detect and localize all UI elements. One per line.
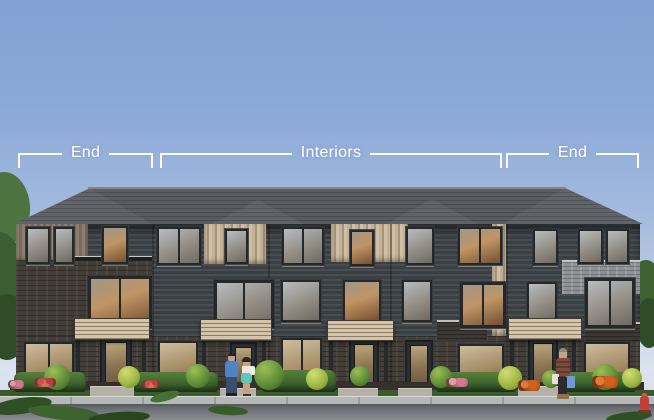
shoulder-bag — [250, 366, 255, 375]
window — [281, 280, 321, 322]
person-feet — [243, 394, 251, 396]
shrub — [118, 366, 140, 388]
window — [54, 227, 74, 264]
bracket-line — [370, 153, 502, 168]
shrub — [622, 368, 642, 388]
person-feet — [226, 393, 237, 396]
person-boots — [557, 394, 569, 399]
window — [406, 227, 434, 265]
window — [527, 282, 557, 322]
bracket-label: End — [71, 144, 100, 168]
bracket-line — [506, 153, 549, 168]
window — [606, 229, 629, 264]
bracket-line — [160, 153, 292, 168]
window — [460, 282, 506, 328]
person-legs — [226, 377, 237, 394]
shrub — [186, 364, 210, 388]
window — [533, 229, 558, 265]
window — [585, 278, 635, 328]
entry-canopy — [74, 318, 150, 340]
bracket-line — [596, 153, 639, 168]
entry-canopy — [327, 320, 394, 341]
window — [343, 280, 381, 322]
shopping-bag — [566, 376, 575, 388]
bracket-end-left: End — [18, 153, 153, 168]
pedestrian-with-bags — [551, 348, 575, 402]
couple-at-entry — [224, 352, 256, 398]
bracket-end-right: End — [506, 153, 639, 168]
person-legs — [558, 377, 567, 394]
flower-cluster — [592, 376, 618, 388]
bracket-label: End — [558, 144, 587, 168]
window — [26, 227, 50, 264]
bracket-line — [18, 153, 62, 168]
window — [282, 227, 324, 265]
bracket-interiors: Interiors — [160, 153, 502, 168]
flower-cluster — [34, 378, 56, 387]
flower-cluster — [8, 380, 24, 389]
roof-ridge — [88, 187, 566, 189]
flower-cluster — [518, 380, 540, 391]
canopy-post — [384, 338, 388, 388]
window — [402, 280, 432, 322]
unit-divider — [152, 224, 154, 390]
window — [102, 226, 128, 264]
window — [157, 227, 201, 265]
entry-canopy — [200, 319, 272, 341]
bracket-line — [109, 153, 153, 168]
unit-divider — [390, 224, 392, 390]
window — [225, 229, 248, 264]
flower-cluster — [446, 378, 468, 387]
flower-cluster — [142, 380, 160, 388]
shrub — [350, 366, 370, 386]
shrub — [254, 360, 284, 390]
shrub — [306, 368, 328, 390]
person-torso — [225, 361, 238, 378]
window — [578, 229, 603, 264]
window — [350, 230, 374, 266]
hydrant-body — [640, 396, 649, 411]
window — [458, 227, 502, 265]
entry-canopy — [508, 318, 582, 340]
townhome-elevation-rendering: End Interiors End — [0, 0, 654, 420]
bracket-label: Interiors — [301, 144, 362, 168]
